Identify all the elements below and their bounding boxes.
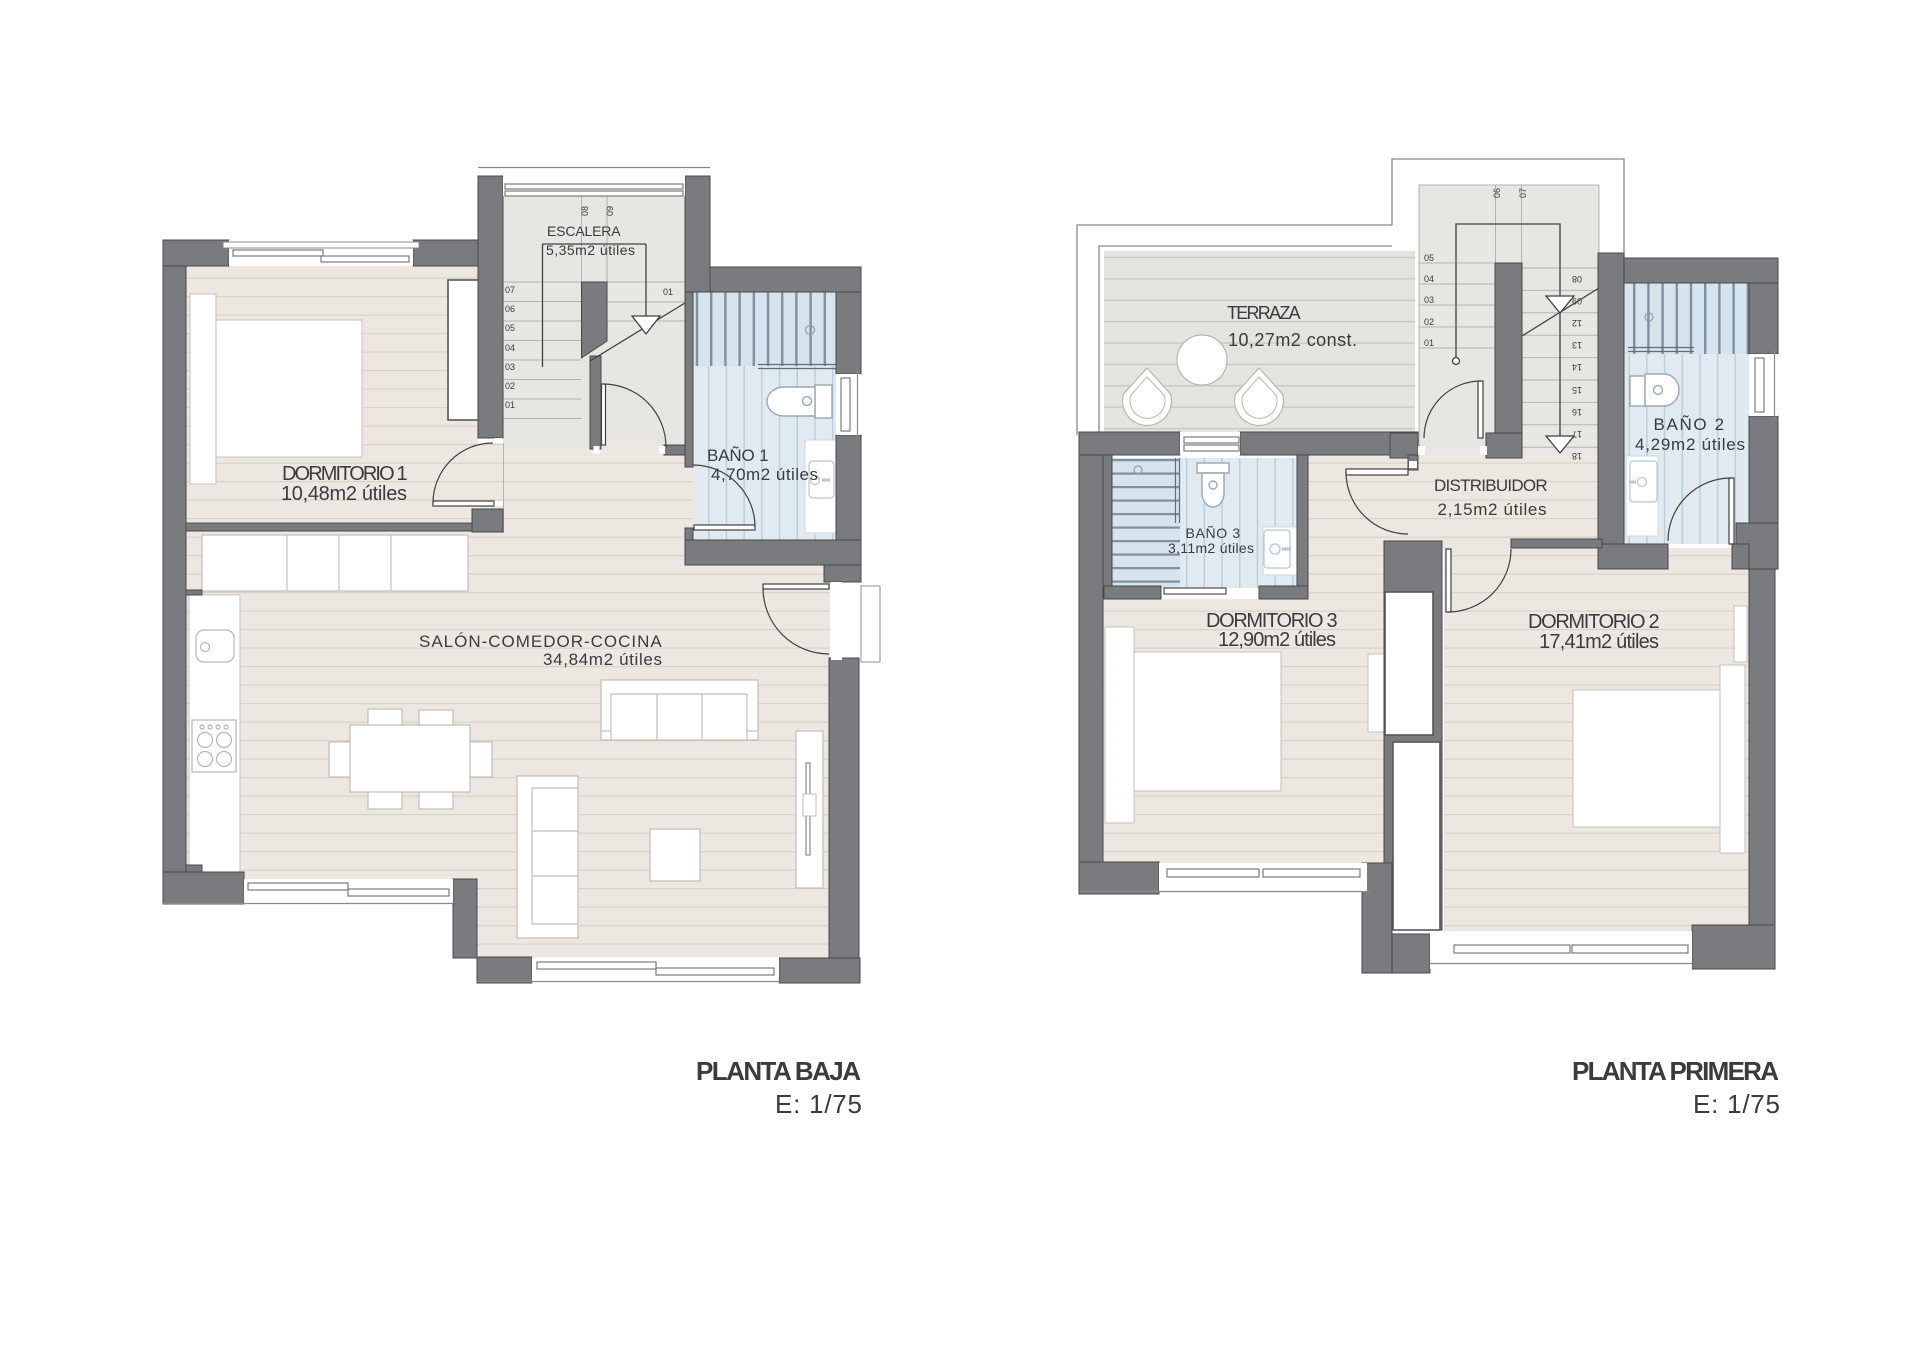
svg-text:17,41m2 útiles: 17,41m2 útiles [1539,631,1659,653]
svg-text:DORMITORIO 2: DORMITORIO 2 [1528,611,1660,633]
svg-text:PLANTA PRIMERA: PLANTA PRIMERA [1572,1056,1779,1086]
svg-text:08: 08 [1572,274,1582,284]
svg-text:02: 02 [1424,317,1434,327]
svg-text:2,15m2 útiles: 2,15m2 útiles [1438,500,1547,519]
svg-text:DISTRIBUIDOR: DISTRIBUIDOR [1434,476,1548,495]
svg-text:BAÑO 1: BAÑO 1 [707,446,769,465]
svg-text:07: 07 [505,285,515,295]
svg-text:4,29m2 útiles: 4,29m2 útiles [1635,435,1745,454]
svg-text:10,48m2 útiles: 10,48m2 útiles [281,483,407,505]
svg-text:10,27m2 const.: 10,27m2 const. [1228,330,1357,350]
svg-text:34,84m2 útiles: 34,84m2 útiles [543,650,662,669]
svg-text:01: 01 [505,400,515,410]
svg-text:E: 1/75: E: 1/75 [775,1089,862,1119]
svg-text:03: 03 [505,362,515,372]
svg-text:13: 13 [1572,340,1582,350]
svg-text:09: 09 [605,206,615,216]
svg-text:06: 06 [505,304,515,314]
svg-text:TERRAZA: TERRAZA [1227,303,1301,323]
svg-text:15: 15 [1572,385,1582,395]
svg-text:18: 18 [1572,451,1582,461]
svg-text:02: 02 [505,381,515,391]
svg-text:SALÓN-COMEDOR-COCINA: SALÓN-COMEDOR-COCINA [419,632,662,651]
svg-text:ESCALERA: ESCALERA [547,223,621,239]
svg-text:14: 14 [1572,362,1582,372]
svg-text:DORMITORIO 1: DORMITORIO 1 [282,463,408,485]
svg-text:07: 07 [1518,188,1528,198]
svg-text:4,70m2 útiles: 4,70m2 útiles [711,465,818,484]
svg-text:5,35m2 útiles: 5,35m2 útiles [546,242,635,258]
svg-text:04: 04 [505,343,515,353]
svg-text:16: 16 [1572,407,1582,417]
svg-text:BAÑO 2: BAÑO 2 [1654,415,1725,434]
svg-text:12: 12 [1572,318,1582,328]
svg-text:04: 04 [1424,274,1434,284]
svg-text:01: 01 [663,287,673,297]
svg-text:PLANTA BAJA: PLANTA BAJA [696,1056,861,1086]
svg-text:05: 05 [1424,253,1434,263]
svg-text:06: 06 [1492,188,1502,198]
svg-text:01: 01 [1424,338,1434,348]
svg-text:BAÑO 3: BAÑO 3 [1186,525,1241,541]
svg-text:12,90m2 útiles: 12,90m2 útiles [1218,629,1336,651]
svg-text:E: 1/75: E: 1/75 [1693,1089,1780,1119]
svg-text:08: 08 [580,206,590,216]
svg-text:03: 03 [1424,295,1434,305]
svg-text:05: 05 [505,323,515,333]
svg-text:3,11m2 útiles: 3,11m2 útiles [1168,540,1254,556]
